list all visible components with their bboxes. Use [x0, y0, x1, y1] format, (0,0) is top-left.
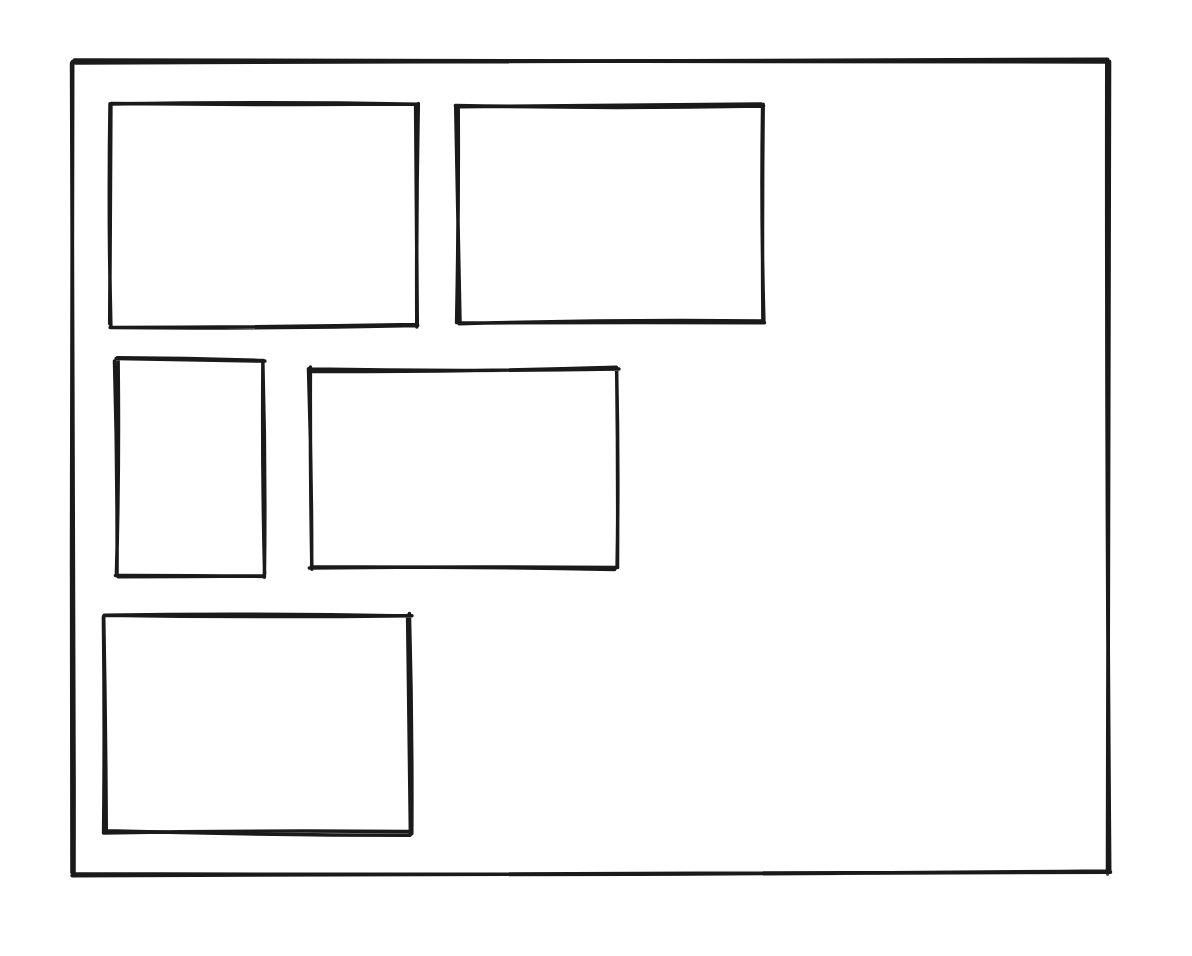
rect-middle-left [115, 358, 265, 577]
rect-middle-center [309, 367, 620, 569]
drawing-canvas [0, 0, 1192, 956]
sketch-stage [0, 0, 1192, 956]
outer-frame [72, 59, 1111, 875]
rect-bottom-left [103, 613, 412, 835]
rect-top-right [455, 104, 764, 324]
rect-top-left [109, 103, 418, 328]
